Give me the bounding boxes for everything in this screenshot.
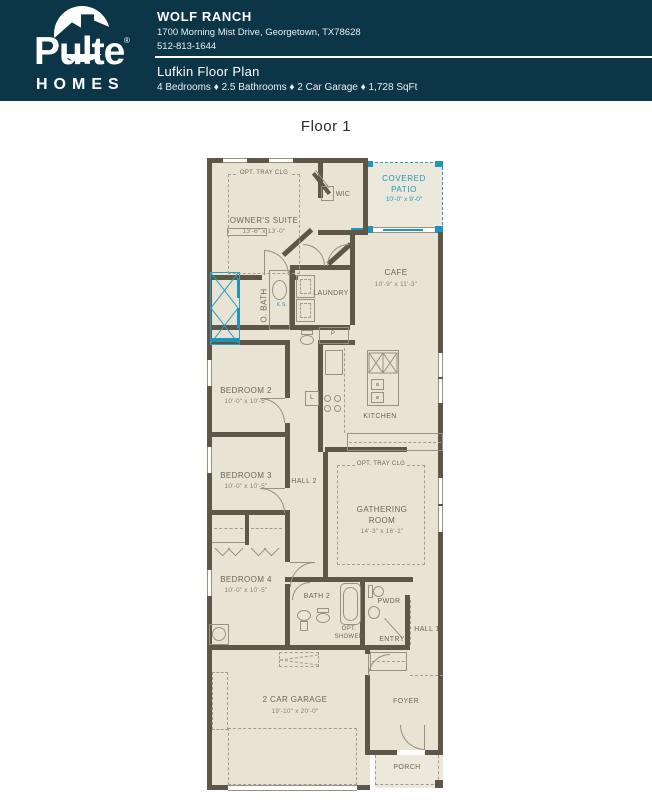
washer-detail (300, 279, 311, 294)
plan-title: Lufkin Floor Plan (157, 64, 260, 79)
attic-x (280, 653, 318, 666)
toilet-bowl (300, 335, 314, 345)
linen-label: L (325, 189, 329, 195)
opt-shower-label: OPT. (342, 626, 357, 632)
wall (363, 158, 368, 232)
garage-door-zone (228, 728, 357, 785)
cooktop-dot (376, 383, 379, 386)
opt-tray-label: OPT. TRAY CLG (238, 170, 290, 176)
porch-label: PORCH (393, 764, 420, 771)
plan-specs: 4 Bedrooms ♦ 2.5 Bathrooms ♦ 2 Car Garag… (157, 82, 417, 93)
wall (285, 345, 290, 398)
wall (318, 230, 368, 235)
water-heater (212, 627, 226, 641)
kitchen-label: KITCHEN (363, 413, 397, 420)
pwdr-label: PWDR (378, 598, 401, 605)
registered-mark: ® (124, 36, 130, 45)
bedroom3-label: BEDROOM 3 (220, 471, 272, 480)
wall (245, 515, 249, 545)
pulte-homes-logo: Pulte ® HOMES (12, 4, 152, 98)
header-divider (155, 56, 652, 58)
community-address: 1700 Morning Mist Drive, Georgetown, TX7… (157, 27, 361, 38)
header: Pulte ® HOMES WOLF RANCH 1700 Morning Mi… (0, 0, 652, 101)
wall (285, 437, 290, 488)
logo-brand-text: Pulte (34, 30, 124, 74)
toilet-bowl (316, 613, 330, 623)
gathering-dims: 14'-3" x 16'-1" (361, 528, 404, 535)
patio-sliding-door-accent (383, 229, 423, 231)
bedroom2-dims: 10'-0" x 10'-5" (225, 398, 268, 405)
range-burner (324, 395, 331, 402)
bathtub-inner (343, 587, 358, 621)
shower-glass-x (211, 273, 238, 343)
island-sink (368, 352, 398, 374)
knee-space-label: K.S. (277, 302, 288, 308)
community-name: WOLF RANCH (157, 9, 252, 24)
cafe-dims: 10'-9" x 11'-3" (375, 281, 418, 288)
wall (323, 452, 328, 582)
patio-post (435, 161, 443, 167)
garage-opt-storage (212, 672, 228, 730)
foyer-dashed-boundary (410, 675, 443, 676)
opt-shower-outline (210, 272, 240, 345)
window (207, 570, 212, 596)
pantry-label: P (331, 331, 335, 337)
patio-label: PATIO (391, 185, 417, 194)
garage-dims: 19'-10" x 20'-0" (272, 708, 319, 715)
door-leaf (290, 562, 315, 563)
kitchen-island (367, 350, 399, 406)
window (438, 379, 443, 403)
hall2-label: HALL 2 (291, 478, 317, 485)
sink-bath2 (297, 610, 311, 621)
bedroom4-label: BEDROOM 4 (220, 575, 272, 584)
window (207, 360, 212, 386)
foyer-label: FOYER (393, 698, 419, 705)
wall (207, 432, 285, 437)
entry-label: ENTRY (379, 636, 405, 643)
opt-shower-label: SHOWER (335, 634, 364, 640)
range-burner (334, 395, 341, 402)
opt-tray-ceiling-gathering (337, 465, 425, 565)
patio-dims: 10'-0" x 9'-0" (386, 196, 422, 203)
closet (212, 515, 245, 543)
toilet-bowl-pwdr (373, 586, 384, 597)
gathering-label: ROOM (369, 516, 396, 525)
wic-label: WIC (336, 191, 351, 198)
counter-edge-dashed (349, 442, 441, 443)
cooktop-dot (376, 396, 379, 399)
cafe-label: CAFE (385, 268, 408, 277)
wall (285, 510, 290, 562)
owners-suite-dims: 13'-6" x 13'-0" (243, 228, 286, 235)
closet-rod (372, 661, 405, 662)
bath2-label: BATH 2 (304, 593, 330, 600)
wall (290, 265, 295, 325)
window (207, 447, 212, 473)
opt-tray-label: OPT. TRAY CLG (355, 461, 407, 467)
range-burner (334, 405, 341, 412)
window (438, 353, 443, 377)
garage-label: 2 CAR GARAGE (263, 695, 328, 704)
owners-suite-label: OWNER'S SUITE (230, 216, 299, 225)
wall (365, 675, 370, 755)
garage-door-opening (228, 785, 357, 791)
floor-plan-page: Pulte ® HOMES WOLF RANCH 1700 Morning Mi… (0, 0, 652, 805)
floor-plan: OPT. TRAY CLG OPT. TRAY CLG OWNER'S SUIT… (207, 158, 443, 792)
gathering-label: GATHERING (357, 505, 408, 514)
patio-label: COVERED (382, 174, 426, 183)
room-fill-foyer (365, 665, 443, 755)
window (438, 478, 443, 504)
floor-title: Floor 1 (0, 118, 652, 135)
shower-door-accent (237, 278, 240, 298)
laundry-label: LAUNDRY (313, 290, 348, 297)
hall1-label: HALL 1 (414, 626, 440, 633)
shower-curb-accent (211, 338, 239, 342)
attic-access (279, 652, 319, 667)
closet-rod (251, 528, 282, 529)
wall (285, 423, 290, 437)
logo-homes-text: HOMES (36, 76, 125, 94)
window (269, 158, 293, 163)
range-burner (324, 405, 331, 412)
bedroom2-label: BEDROOM 2 (220, 386, 272, 395)
door-leaf (368, 654, 369, 676)
wall (285, 584, 290, 650)
bedroom4-dims: 10'-0" x 10'-5" (225, 587, 268, 594)
window (438, 506, 443, 532)
sink-pwdr (368, 606, 380, 619)
door-leaf (424, 725, 425, 750)
dryer-detail (300, 303, 311, 318)
sink-obath (272, 280, 287, 300)
porch-post (435, 780, 443, 788)
community-phone: 512-813-1644 (157, 41, 216, 52)
wall (438, 665, 443, 755)
obath-label: O. BATH (260, 276, 269, 336)
vanity-obath (269, 270, 290, 330)
shower-door-accent (237, 308, 240, 328)
bedroom3-dims: 10'-0" x 10'-5" (225, 483, 268, 490)
hall1-dashed-boundary (410, 600, 411, 645)
window (223, 158, 247, 163)
linen-label: L (310, 395, 314, 401)
sink-pedestal (300, 621, 308, 631)
closet-rod (214, 528, 243, 529)
refrigerator (325, 350, 343, 375)
wall (207, 645, 410, 650)
